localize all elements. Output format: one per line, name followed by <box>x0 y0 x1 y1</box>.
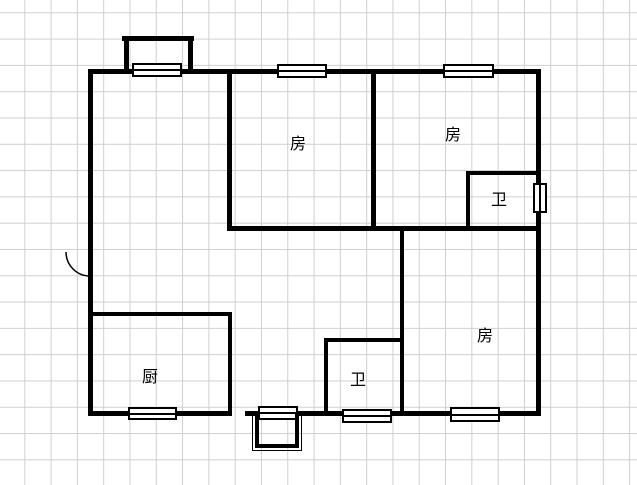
floorplan-canvas: 房房房卫卫厨 <box>0 0 637 485</box>
window-top-bedroom1-midline <box>279 70 325 72</box>
window-top-bedroom1 <box>277 64 327 78</box>
window-bath2-midline <box>344 415 390 417</box>
room-label-bath-1: 卫 <box>491 192 507 208</box>
bedroom1-wall-left <box>227 69 232 231</box>
bedroom3-wall-left <box>400 226 404 416</box>
bath1-wall-left <box>466 171 470 231</box>
window-bedroom3 <box>450 407 500 422</box>
balcony-wall-top <box>122 36 194 41</box>
window-right-bath1 <box>533 183 547 213</box>
bath1-wall-top <box>466 171 541 175</box>
room-label-bedroom-3: 房 <box>477 328 493 344</box>
entry-porch <box>252 414 302 451</box>
window-bedroom3-midline <box>452 414 498 416</box>
bedroom-divider-wall <box>371 69 376 231</box>
window-top-bedroom2 <box>443 64 494 78</box>
window-kitchen <box>128 407 177 420</box>
window-balcony-midline <box>134 69 180 71</box>
bath2-wall-top <box>324 338 404 342</box>
outer-wall-right <box>536 69 541 416</box>
room-label-bedroom-2: 房 <box>445 127 461 143</box>
window-bath2 <box>342 409 392 423</box>
window-top-bedroom2-midline <box>445 70 492 72</box>
kitchen-wall-top <box>88 312 232 316</box>
room-label-bath-2: 卫 <box>350 372 366 388</box>
room-label-kitchen: 厨 <box>142 369 158 385</box>
window-right-bath1-midline <box>539 185 541 211</box>
window-kitchen-midline <box>130 413 175 415</box>
bath2-wall-left <box>324 338 328 416</box>
window-balcony <box>132 63 182 77</box>
entry-door-swing-path <box>66 252 90 276</box>
room-label-bedroom-1: 房 <box>290 136 306 152</box>
outer-wall-left <box>88 69 93 416</box>
kitchen-wall-right <box>228 312 232 416</box>
interior-wall-mid-horizontal <box>227 226 541 231</box>
entry-porch-inner-line <box>255 414 299 448</box>
